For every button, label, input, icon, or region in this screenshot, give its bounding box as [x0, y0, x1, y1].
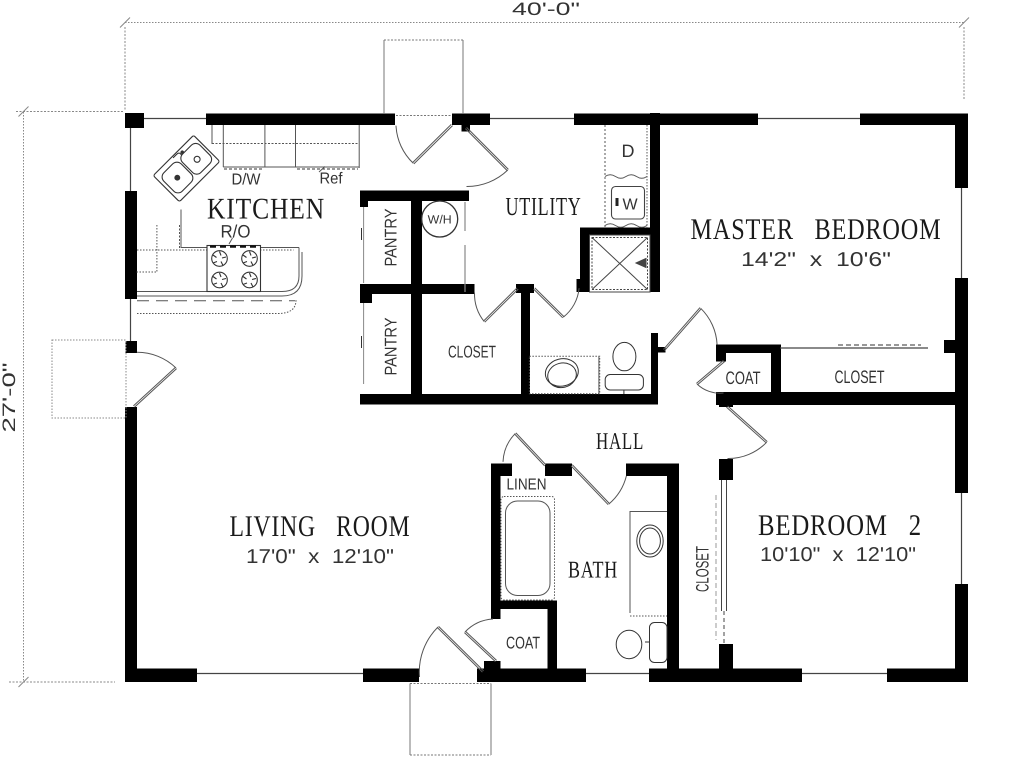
svg-text:40'-0": 40'-0" — [512, 0, 580, 19]
svg-text:CLOSET: CLOSET — [448, 343, 496, 362]
svg-text:CLOSET: CLOSET — [693, 546, 713, 592]
svg-text:27'-0": 27'-0" — [0, 363, 19, 433]
svg-text:COAT: COAT — [726, 368, 761, 388]
svg-text:10'10" x 12'10": 10'10" x 12'10" — [760, 544, 916, 566]
svg-text:PANTRY: PANTRY — [382, 209, 401, 267]
svg-text:BATH: BATH — [568, 558, 618, 584]
svg-text:LINEN: LINEN — [507, 477, 547, 494]
svg-text:17'0" x 12'10": 17'0" x 12'10" — [246, 546, 394, 568]
svg-text:HALL: HALL — [596, 429, 644, 455]
svg-text:W/H: W/H — [428, 213, 452, 227]
svg-text:CLOSET: CLOSET — [835, 367, 885, 387]
svg-text:R/O: R/O — [221, 222, 251, 242]
svg-text:W: W — [622, 197, 638, 214]
svg-text:D: D — [622, 141, 635, 161]
svg-text:UTILITY: UTILITY — [506, 192, 582, 221]
svg-text:PANTRY: PANTRY — [382, 318, 401, 376]
svg-text:LIVING ROOM: LIVING ROOM — [230, 510, 411, 543]
svg-text:Ref: Ref — [320, 171, 344, 188]
svg-text:COAT: COAT — [506, 634, 540, 653]
svg-text:D/W: D/W — [232, 172, 262, 189]
svg-text:BEDROOM 2: BEDROOM 2 — [758, 509, 922, 542]
svg-text:14'2" x 10'6": 14'2" x 10'6" — [741, 249, 891, 271]
svg-text:MASTER BEDROOM: MASTER BEDROOM — [691, 213, 942, 246]
